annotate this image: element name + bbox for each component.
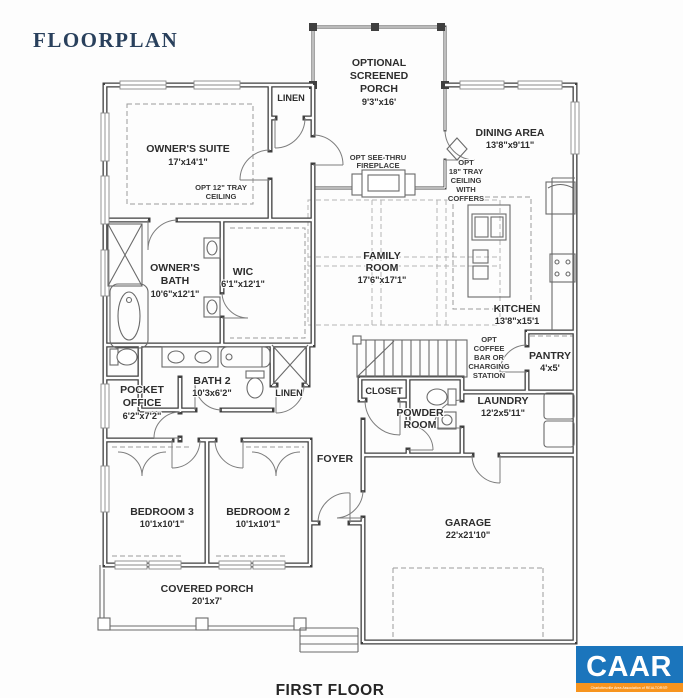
see-thru-fireplace xyxy=(352,170,415,197)
bedroom3-dims: 10'1x10'1" xyxy=(140,519,185,529)
family-room-dims: 17'6"x17'1" xyxy=(358,275,407,285)
wic-dims: 6'1"x12'1" xyxy=(221,279,265,289)
owners-shower xyxy=(108,224,142,286)
coffee-bar-label: STATION xyxy=(473,371,505,380)
porch-post xyxy=(196,618,208,630)
bath2-label: BATH 2 xyxy=(193,375,230,387)
coffee-bar-label: COFFEE xyxy=(474,344,505,353)
pocket-office-dims: 6'2"x7'2" xyxy=(123,411,162,421)
owners-toilet xyxy=(110,349,137,365)
closet-door xyxy=(365,400,400,435)
tray-ceiling-18-label: COFFERS xyxy=(448,194,484,203)
caar-logo-tagline: Charlottesville Area Association of REAL… xyxy=(591,686,668,690)
screened-porch-label: OPTIONAL xyxy=(352,57,407,69)
coffee-bar-label: CHARGING xyxy=(468,362,509,371)
floorplan-page: OPTIONAL SCREENED PORCH 9'3"x16' LINEN O… xyxy=(0,0,683,698)
porch-post xyxy=(98,618,110,630)
entry-steps xyxy=(300,628,358,652)
laundry-label: LAUNDRY xyxy=(478,395,529,407)
bedroom2-closet-doors xyxy=(252,452,300,476)
caar-logo-text: CAAR xyxy=(586,651,672,683)
bedroom3-label: BEDROOM 3 xyxy=(130,506,194,518)
pocket-office-label: OFFICE xyxy=(123,397,162,409)
owners-suite-label: OWNER'S SUITE xyxy=(146,143,230,155)
linen-lower-label: LINEN xyxy=(275,388,303,398)
kitchen-counter xyxy=(546,178,575,330)
tray-ceiling-18-label: 18" TRAY xyxy=(449,167,483,176)
bath2-vanity xyxy=(162,347,218,367)
tray-ceiling-18-label: WITH xyxy=(456,185,475,194)
kitchen-island xyxy=(468,205,510,297)
dining-fixture xyxy=(447,138,467,160)
bedroom3-door xyxy=(172,440,200,468)
porch-post xyxy=(309,23,317,31)
powder-room-label: POWDER xyxy=(396,407,444,419)
owners-bathtub xyxy=(110,284,148,348)
bedroom2-door xyxy=(215,440,243,468)
pocket-office-label: POCKET xyxy=(120,384,164,396)
owners-bath-label: BATH xyxy=(161,275,189,287)
screened-porch-label: SCREENED xyxy=(350,70,409,82)
bedroom3-closet-doors xyxy=(118,452,166,476)
bath2-dims: 10'3x6'2" xyxy=(192,388,231,398)
wic-door xyxy=(222,292,248,318)
laundry-dims: 12'2x5'11" xyxy=(481,408,525,418)
bedroom2-label: BEDROOM 2 xyxy=(226,506,290,518)
owners-bath-label: OWNER'S xyxy=(150,262,200,274)
owners-bath-vanities xyxy=(204,238,220,317)
kitchen-label: KITCHEN xyxy=(494,303,541,315)
garage-laundry-door xyxy=(472,455,500,483)
tray-ceiling-12-label: OPT 12" TRAY xyxy=(195,183,247,192)
porch-dining-door xyxy=(445,130,475,160)
closet-label: CLOSET xyxy=(365,386,403,396)
first-floor-label: FIRST FLOOR xyxy=(276,682,385,698)
coffee-bar-label: OPT xyxy=(481,335,497,344)
family-room-label: FAMILY xyxy=(363,250,401,262)
family-room-coffer-grid xyxy=(308,200,500,325)
caar-logo: CAAR Charlottesville Area Association of… xyxy=(576,646,683,692)
garage-label: GARAGE xyxy=(445,517,491,529)
kitchen-dims: 13'8"x15'1 xyxy=(495,316,540,326)
staircase xyxy=(353,336,467,377)
tray-ceiling-12-label: CEILING xyxy=(206,192,237,201)
covered-porch-structure xyxy=(98,565,358,652)
floorplan-drawing: OPTIONAL SCREENED PORCH 9'3"x16' LINEN O… xyxy=(0,0,683,698)
wic-label: WIC xyxy=(233,266,254,278)
page-title: FLOORPLAN xyxy=(33,28,178,52)
coffee-bar-label: BAR OR xyxy=(474,353,504,362)
bedroom2-dims: 10'1x10'1" xyxy=(236,519,281,529)
garage-door-outline xyxy=(393,568,543,640)
porch-post xyxy=(371,23,379,31)
covered-porch-dims: 20'1x7' xyxy=(192,596,222,606)
screened-porch-dims: 9'3"x16' xyxy=(362,97,396,107)
owners-suite-dims: 17'x14'1" xyxy=(168,157,207,167)
covered-porch-label: COVERED PORCH xyxy=(161,583,254,595)
screened-porch-label: PORCH xyxy=(360,83,398,95)
powder-room-label: ROOM xyxy=(404,419,437,431)
porch-hall-door xyxy=(313,135,343,165)
owners-suite-door xyxy=(240,150,270,180)
owners-bath-dims: 10'6"x12'1" xyxy=(151,289,200,299)
fireplace-label: FIREPLACE xyxy=(356,161,399,170)
powder-toilet xyxy=(427,389,456,405)
dining-label: DINING AREA xyxy=(475,127,544,139)
foyer-label: FOYER xyxy=(317,453,354,465)
room-labels: OPTIONAL SCREENED PORCH 9'3"x16' LINEN O… xyxy=(120,57,571,606)
pantry-label: PANTRY xyxy=(529,350,571,362)
porch-post xyxy=(437,23,445,31)
tray-ceiling-18-label: CEILING xyxy=(451,176,482,185)
tray-ceiling-18-label: OPT xyxy=(458,158,474,167)
washer-dryer xyxy=(544,393,574,447)
linen-lower-shelving xyxy=(272,345,308,385)
bath2-toilet xyxy=(246,371,264,398)
bath2-tub xyxy=(221,347,270,367)
linen-upper-door xyxy=(275,118,305,148)
family-room-label: ROOM xyxy=(366,262,399,274)
owners-bath-door xyxy=(148,220,178,250)
linen-upper-label: LINEN xyxy=(277,93,305,103)
pantry-dims: 4'x5' xyxy=(540,363,560,373)
dining-dims: 13'8"x9'11" xyxy=(486,140,534,150)
garage-dims: 22'x21'10" xyxy=(446,530,491,540)
